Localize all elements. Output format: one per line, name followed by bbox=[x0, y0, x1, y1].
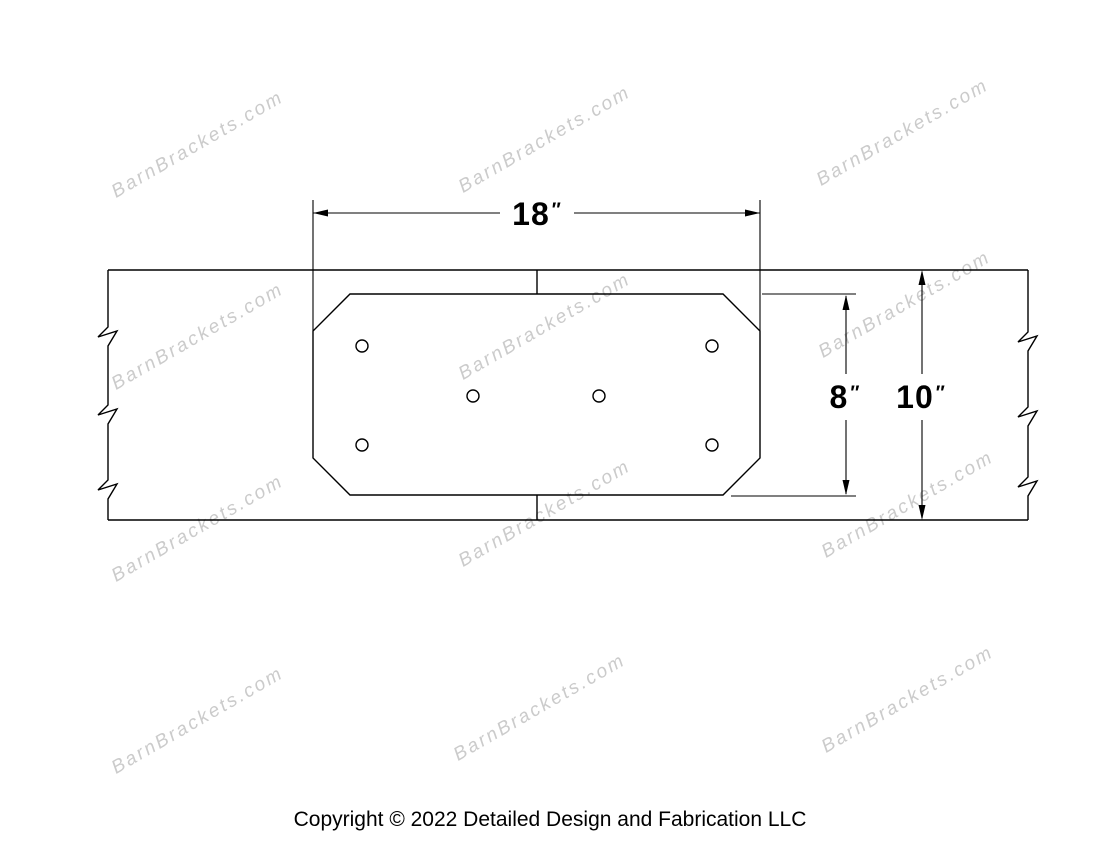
bracket-drawing-svg: 18″ 8″ 10″ bbox=[0, 0, 1100, 850]
bolt-hole bbox=[706, 439, 718, 451]
copyright-text: Copyright © 2022 Detailed Design and Fab… bbox=[0, 808, 1100, 832]
bolt-hole bbox=[467, 390, 479, 402]
dim-plate-height-label: 8″ bbox=[830, 379, 861, 415]
dim-plate-height-value: 8 bbox=[830, 379, 849, 415]
dim-beam-height-label: 10″ bbox=[896, 379, 946, 415]
dim-plate-height-unit: ″ bbox=[850, 383, 860, 404]
beam-left-edge-break-lines bbox=[98, 270, 117, 520]
arrowhead-top bbox=[843, 295, 850, 310]
dimension-plate-height: 8″ bbox=[731, 294, 860, 496]
arrowhead-left bbox=[313, 210, 328, 217]
bolt-hole bbox=[356, 340, 368, 352]
bolt-holes bbox=[356, 340, 718, 451]
dimension-width: 18″ bbox=[313, 196, 760, 331]
arrowhead-bottom bbox=[919, 505, 926, 520]
bolt-hole bbox=[593, 390, 605, 402]
dim-beam-height-unit: ″ bbox=[936, 383, 946, 404]
dim-width-label: 18″ bbox=[512, 196, 562, 232]
arrowhead-right bbox=[745, 210, 760, 217]
bolt-hole bbox=[706, 340, 718, 352]
dim-width-unit: ″ bbox=[552, 200, 562, 221]
drawing-canvas: BarnBrackets.com BarnBrackets.com BarnBr… bbox=[0, 0, 1100, 850]
beam-right-edge-break-lines bbox=[1018, 270, 1037, 520]
dimension-beam-height: 10″ bbox=[896, 270, 946, 520]
arrowhead-top bbox=[919, 270, 926, 285]
bolt-hole bbox=[356, 439, 368, 451]
dim-width-value: 18 bbox=[512, 196, 550, 232]
bracket-plate-outline bbox=[313, 294, 760, 495]
dim-beam-height-value: 10 bbox=[896, 379, 934, 415]
arrowhead-bottom bbox=[843, 480, 850, 495]
